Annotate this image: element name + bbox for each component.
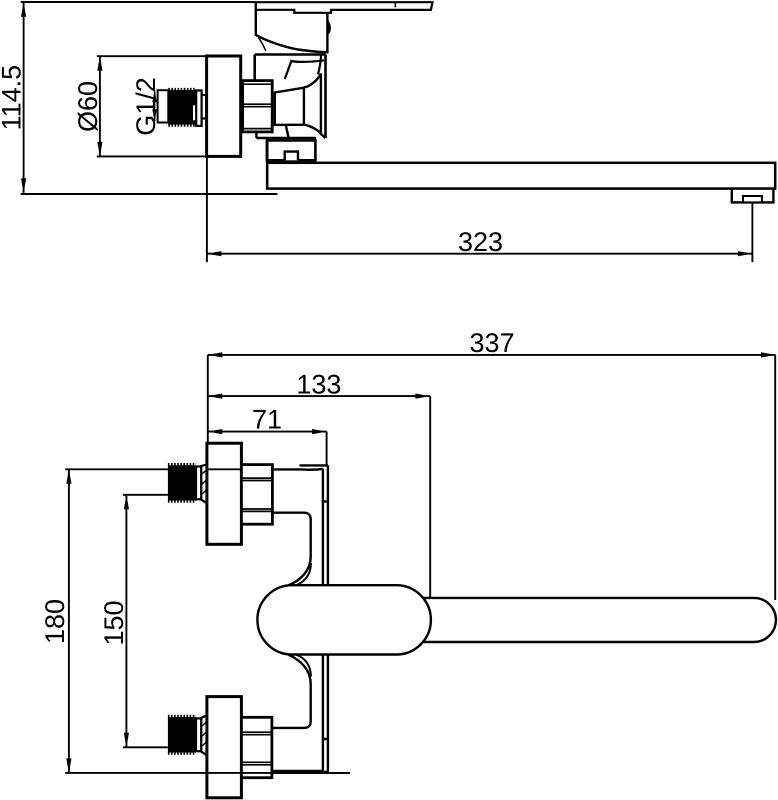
svg-text:150: 150 <box>99 600 129 645</box>
svg-text:337: 337 <box>469 328 514 358</box>
svg-text:G1/2: G1/2 <box>131 77 161 136</box>
svg-text:114.5: 114.5 <box>0 65 26 131</box>
svg-text:133: 133 <box>296 369 341 399</box>
svg-text:71: 71 <box>252 405 282 435</box>
svg-text:180: 180 <box>40 599 70 644</box>
svg-text:Ø60: Ø60 <box>73 81 103 132</box>
svg-text:323: 323 <box>458 227 503 257</box>
